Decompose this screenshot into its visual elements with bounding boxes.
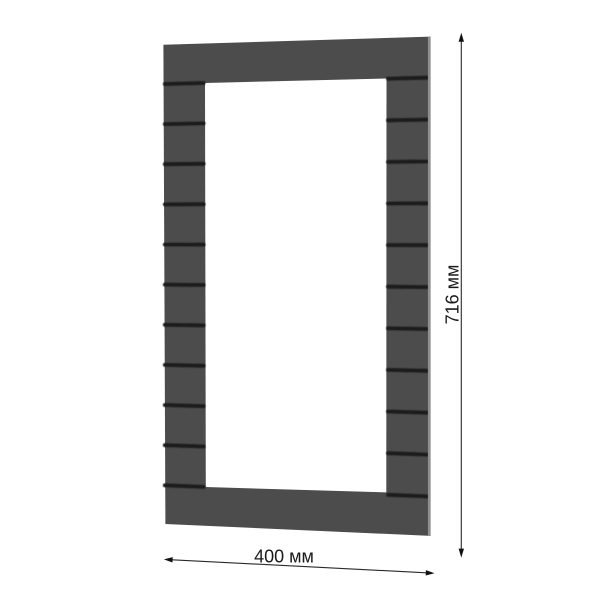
svg-text:716 мм: 716 мм	[442, 265, 462, 325]
svg-text:400 мм: 400 мм	[254, 547, 314, 567]
